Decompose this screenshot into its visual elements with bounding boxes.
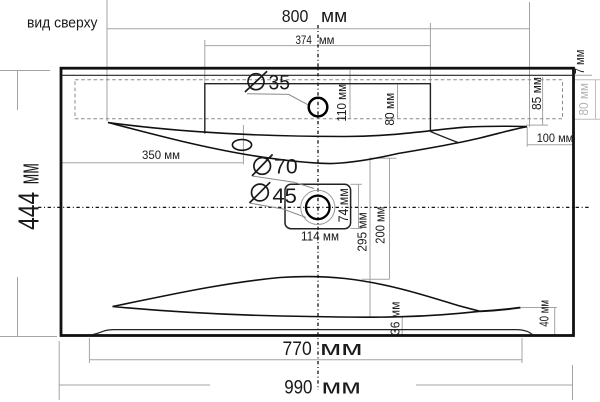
svg-text:990: 990: [284, 376, 312, 398]
svg-text:35: 35: [269, 71, 291, 94]
svg-text:85 мм: 85 мм: [530, 77, 544, 110]
svg-text:40 мм: 40 мм: [537, 300, 552, 327]
svg-text:мм: мм: [13, 163, 45, 184]
svg-text:444: 444: [13, 192, 45, 230]
svg-text:мм: мм: [319, 33, 335, 47]
svg-text:80 мм: 80 мм: [577, 83, 591, 116]
svg-text:мм: мм: [321, 6, 347, 26]
svg-text:100 мм: 100 мм: [537, 131, 574, 145]
svg-text:770: 770: [283, 339, 312, 360]
svg-text:295 мм: 295 мм: [355, 212, 370, 251]
svg-text:74 мм: 74 мм: [336, 188, 351, 222]
svg-text:70: 70: [274, 155, 298, 178]
svg-text:200 мм: 200 мм: [373, 207, 388, 244]
svg-text:45: 45: [272, 185, 297, 208]
svg-text:7 мм: 7 мм: [572, 50, 587, 75]
svg-text:110 мм: 110 мм: [335, 84, 349, 122]
svg-text:вид сверху: вид сверху: [27, 15, 98, 32]
svg-text:36 мм: 36 мм: [388, 302, 403, 335]
svg-text:мм: мм: [322, 376, 361, 398]
svg-text:114 мм: 114 мм: [301, 228, 339, 243]
svg-text:350 мм: 350 мм: [142, 148, 180, 162]
svg-text:374: 374: [296, 34, 313, 47]
svg-text:мм: мм: [320, 338, 363, 360]
svg-text:80 мм: 80 мм: [383, 93, 397, 126]
svg-text:800: 800: [282, 6, 309, 26]
